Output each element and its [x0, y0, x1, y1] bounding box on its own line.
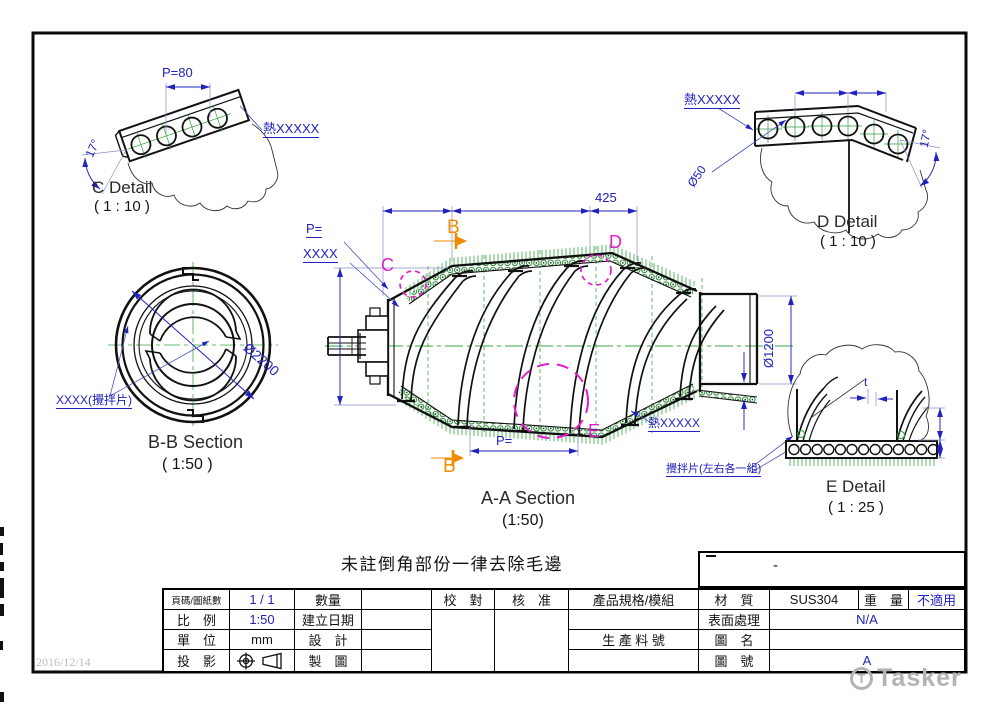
- spec-label: 產品規格/模組: [569, 590, 699, 610]
- part-number-box: [698, 551, 966, 588]
- e-detail-drawing: [786, 345, 945, 462]
- page-count-label: 頁碼/圖紙數: [164, 590, 230, 610]
- partno-value: [569, 650, 699, 671]
- aa-heat-label: 熱XXXXX: [648, 417, 700, 432]
- detail-marker-c: C: [381, 256, 394, 276]
- scale-value: 1:50: [230, 610, 295, 630]
- approve-label: 核 准: [495, 590, 569, 610]
- design-value: [362, 630, 432, 650]
- bb-section-scale: ( 1:50 ): [162, 456, 213, 474]
- c-heat-label: 熱XXXXX: [263, 122, 319, 138]
- e-detail-scale: ( 1 : 25 ): [828, 500, 884, 517]
- aa-section-title: A-A Section: [481, 489, 575, 509]
- aa-pitch-label-line1: P=: [306, 222, 322, 238]
- engineering-drawing-sheet: C Detail ( 1 : 10 ) P=80 17° 熱XXXXX 熱XXX…: [0, 0, 1000, 706]
- general-note: 未註倒角部份一律去除毛邊: [341, 556, 563, 575]
- d-detail-title: D Detail: [817, 213, 877, 232]
- aa-425-dim: 425: [595, 191, 617, 205]
- material-label: 材 質: [699, 590, 770, 610]
- projection-symbol-icon: [236, 652, 288, 670]
- section-marker-b-bottom: B: [443, 457, 456, 478]
- part-box-mark: -: [773, 558, 778, 575]
- bb-blade-label: XXXX(攪拌片): [56, 394, 132, 409]
- detail-marker-e: E: [588, 422, 600, 442]
- watermark-text: Tasker: [877, 664, 962, 693]
- c-detail-title: C Detail: [92, 179, 152, 198]
- c-detail-scale: ( 1 : 10 ): [94, 199, 150, 216]
- e-detail-title: E Detail: [826, 478, 886, 497]
- part-box-tick: [706, 555, 716, 557]
- title-block: 頁碼/圖紙數 1 / 1 數量 校 對 核 准 產品規格/模組 材 質 SUS3…: [162, 588, 966, 673]
- quantity-value: [362, 590, 432, 610]
- weight-label: 重 量: [859, 590, 909, 610]
- check-label: 校 對: [432, 590, 495, 610]
- tasker-logo-icon: T: [850, 667, 873, 690]
- scale-label: 比 例: [164, 610, 230, 630]
- check-value: [432, 610, 495, 671]
- surface-value: N/A: [770, 610, 964, 630]
- drawing-number-label: 圖 號: [699, 650, 770, 671]
- date-stamp: 2016/12/14: [36, 655, 91, 670]
- create-date-label: 建立日期: [295, 610, 362, 630]
- spec-value: [569, 610, 699, 630]
- design-label: 設 計: [295, 630, 362, 650]
- aa-section-scale: (1:50): [502, 512, 544, 530]
- unit-label: 單 位: [164, 630, 230, 650]
- watermark: T Tasker: [850, 664, 962, 693]
- surface-label: 表面處理: [699, 610, 770, 630]
- detail-marker-d: D: [609, 233, 622, 253]
- draft-label: 製 圖: [295, 650, 362, 671]
- partno-label: 生 產 料 號: [569, 630, 699, 650]
- aa-pitch-label-line2: XXXX: [303, 247, 338, 263]
- d-heat-label: 熱XXXXX: [684, 93, 740, 109]
- aa-blade-label: 攪拌片(左右各一組): [666, 463, 761, 477]
- aa-section-drawing: [325, 206, 799, 472]
- quantity-label: 數量: [295, 590, 362, 610]
- weight-value: 不適用: [909, 590, 964, 610]
- drawing-name-label: 圖 名: [699, 630, 770, 650]
- projection-label: 投 影: [164, 650, 230, 671]
- section-marker-b-top: B: [447, 218, 460, 239]
- bb-section-title: B-B Section: [148, 433, 243, 453]
- create-date-value: [362, 610, 432, 630]
- material-value: SUS304: [770, 590, 859, 610]
- c-pitch-dim: P=80: [162, 66, 193, 80]
- draft-value: [362, 650, 432, 671]
- page-count-value: 1 / 1: [230, 590, 295, 610]
- approve-value: [495, 610, 569, 671]
- page-edge-marks: [0, 527, 4, 702]
- aa-outlet-dia-dim: Ø1200: [762, 316, 776, 368]
- e-thickness-dim: t: [864, 376, 867, 389]
- projection-symbol: [230, 650, 295, 671]
- drawing-name-value: [770, 630, 964, 650]
- d-detail-scale: ( 1 : 10 ): [820, 234, 876, 251]
- unit-value: mm: [230, 630, 295, 650]
- aa-pitch-bottom-dim: P=: [496, 434, 512, 448]
